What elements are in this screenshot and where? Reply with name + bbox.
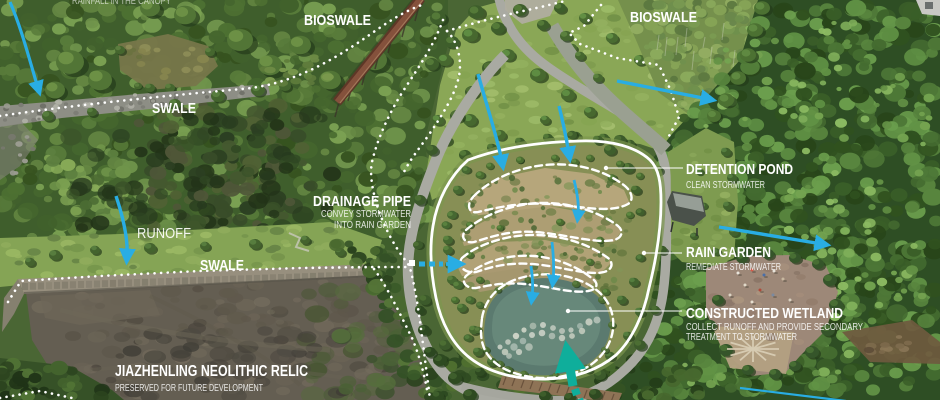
svg-text:JIAZHENLING NEOLITHIC RELIC: JIAZHENLING NEOLITHIC RELIC — [115, 363, 308, 380]
svg-text:CLEAN STORMWATER: CLEAN STORMWATER — [686, 179, 765, 191]
svg-text:BIOSWALE: BIOSWALE — [630, 9, 697, 26]
svg-text:BIOSWALE: BIOSWALE — [304, 12, 371, 29]
svg-text:DETENTION POND: DETENTION POND — [686, 161, 793, 178]
svg-text:TREATMENT TO STORMWATER: TREATMENT TO STORMWATER — [686, 331, 797, 343]
svg-text:SWALE: SWALE — [200, 257, 244, 274]
svg-text:RAINFALL IN THE CANOPY: RAINFALL IN THE CANOPY — [72, 0, 171, 7]
svg-text:RAIN GARDEN: RAIN GARDEN — [686, 244, 771, 261]
svg-text:PRESERVED FOR FUTURE DEVELOPME: PRESERVED FOR FUTURE DEVELOPMENT — [115, 382, 263, 394]
svg-text:INTO RAIN GARDEN: INTO RAIN GARDEN — [334, 219, 411, 231]
svg-text:REMEDIATE STORMWATER: REMEDIATE STORMWATER — [686, 261, 781, 273]
svg-text:RUNOFF: RUNOFF — [137, 225, 191, 242]
svg-text:SWALE: SWALE — [152, 100, 196, 117]
svg-text:CONSTRUCTED WETLAND: CONSTRUCTED WETLAND — [686, 305, 843, 322]
